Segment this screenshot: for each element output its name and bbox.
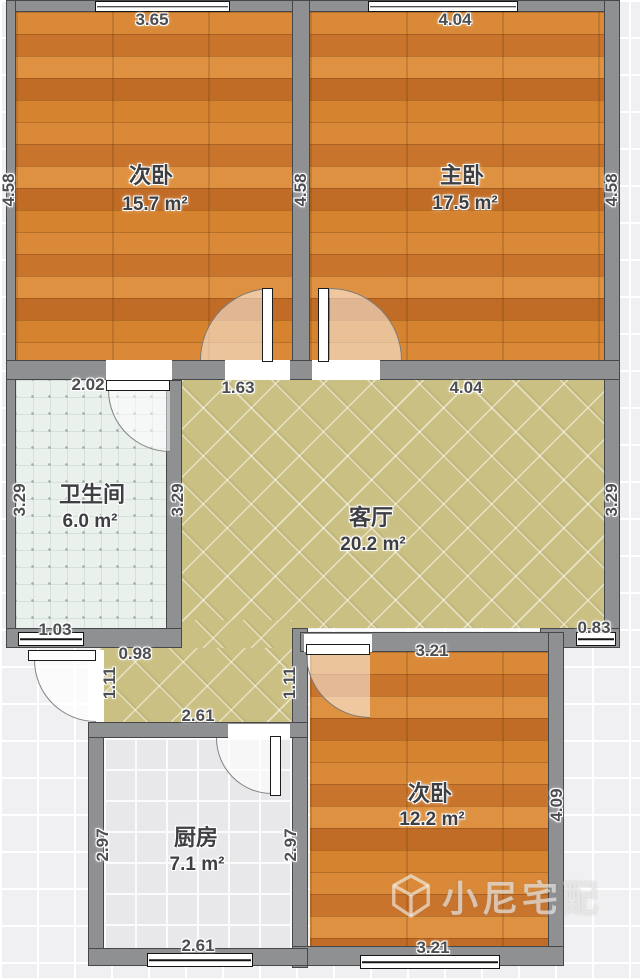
watermark-logo-icon — [388, 873, 434, 919]
room-area-kitchen: 7.1 m² — [170, 854, 225, 876]
dim-bath-right: 3.29 — [168, 483, 188, 516]
dim-hall-bottom: 2.61 — [181, 706, 214, 726]
door-gap-bedroom-top-left — [225, 360, 290, 380]
room-area-bedroom-top-right: 17.5 m² — [432, 193, 497, 215]
dim-kitchen-bottom: 2.61 — [181, 936, 214, 956]
dim-living-bottom-right: 0.83 — [577, 618, 610, 638]
room-label-living-room: 客厅 — [349, 500, 393, 532]
dim-left-height: 4.58 — [0, 173, 19, 206]
door-leaf-kitchen — [270, 736, 281, 796]
watermark: 小尼宅配 — [388, 870, 602, 922]
dim-mid-height: 4.58 — [291, 173, 311, 206]
door-gap-bedroom-top-right — [312, 360, 380, 380]
room-label-bedroom-bottom: 次卧 — [408, 776, 452, 808]
dim-living-top-seg: 1.63 — [221, 378, 254, 398]
dim-bed3-top: 3.21 — [415, 641, 448, 661]
door-swing-entry — [34, 660, 96, 722]
watermark-text: 小尼宅配 — [442, 870, 602, 922]
door-leaf-bedroom-top-right — [318, 288, 329, 362]
dim-living-top: 4.04 — [449, 378, 482, 398]
room-label-bedroom-top-left: 次卧 — [129, 158, 173, 190]
door-leaf-bedroom-top-left — [262, 288, 273, 362]
room-label-bathroom: 卫生间 — [59, 477, 125, 509]
wall-left — [6, 0, 16, 648]
door-leaf-bedroom-bottom — [306, 644, 370, 655]
dim-bath-left: 3.29 — [10, 483, 30, 516]
room-label-kitchen: 厨房 — [174, 820, 218, 852]
door-leaf-bathroom — [106, 380, 170, 391]
room-area-bedroom-top-left: 15.7 m² — [122, 194, 187, 216]
wall-right — [604, 0, 620, 648]
room-area-bedroom-bottom: 12.2 m² — [399, 809, 464, 831]
dim-bed2-top: 4.04 — [438, 10, 471, 30]
dim-hall-left: 1.11 — [100, 667, 120, 699]
dim-hall-right: 1.11 — [280, 667, 300, 699]
dim-kitchen-left: 2.97 — [93, 828, 113, 861]
door-leaf-entry — [28, 650, 96, 661]
room-area-living-room: 20.2 m² — [340, 534, 405, 556]
room-label-bedroom-top-right: 主卧 — [440, 158, 484, 190]
dim-bed1-top: 3.65 — [135, 10, 168, 30]
dim-hall-top: 0.98 — [118, 644, 151, 664]
dim-kitchen-right: 2.97 — [281, 828, 301, 861]
room-area-bathroom: 6.0 m² — [63, 511, 118, 533]
dim-bed3-bottom: 3.21 — [416, 938, 449, 958]
dim-right-height: 4.58 — [602, 173, 622, 206]
dim-bath-bottom: 1.03 — [38, 620, 71, 640]
dim-living-right: 3.29 — [602, 483, 622, 516]
dim-bath-top: 2.02 — [71, 375, 104, 395]
dim-bed3-right: 4.09 — [547, 788, 567, 821]
door-gap-bathroom — [106, 360, 172, 380]
